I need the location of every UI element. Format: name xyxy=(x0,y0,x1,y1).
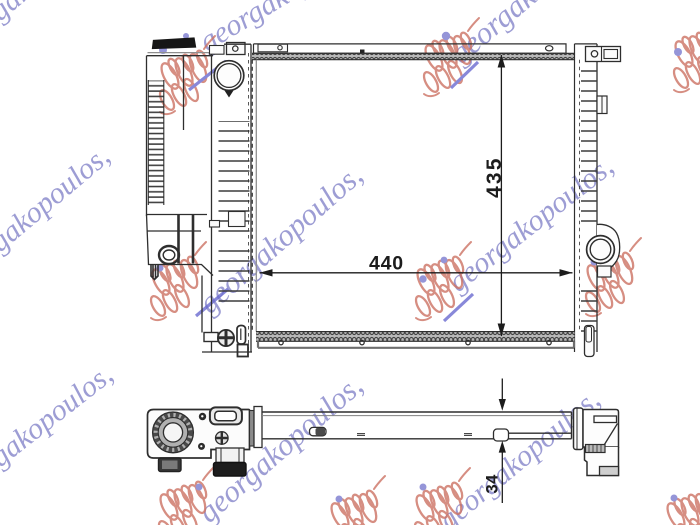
svg-text:435: 435 xyxy=(483,156,506,198)
svg-text:34: 34 xyxy=(484,474,502,494)
svg-text:440: 440 xyxy=(369,253,404,275)
